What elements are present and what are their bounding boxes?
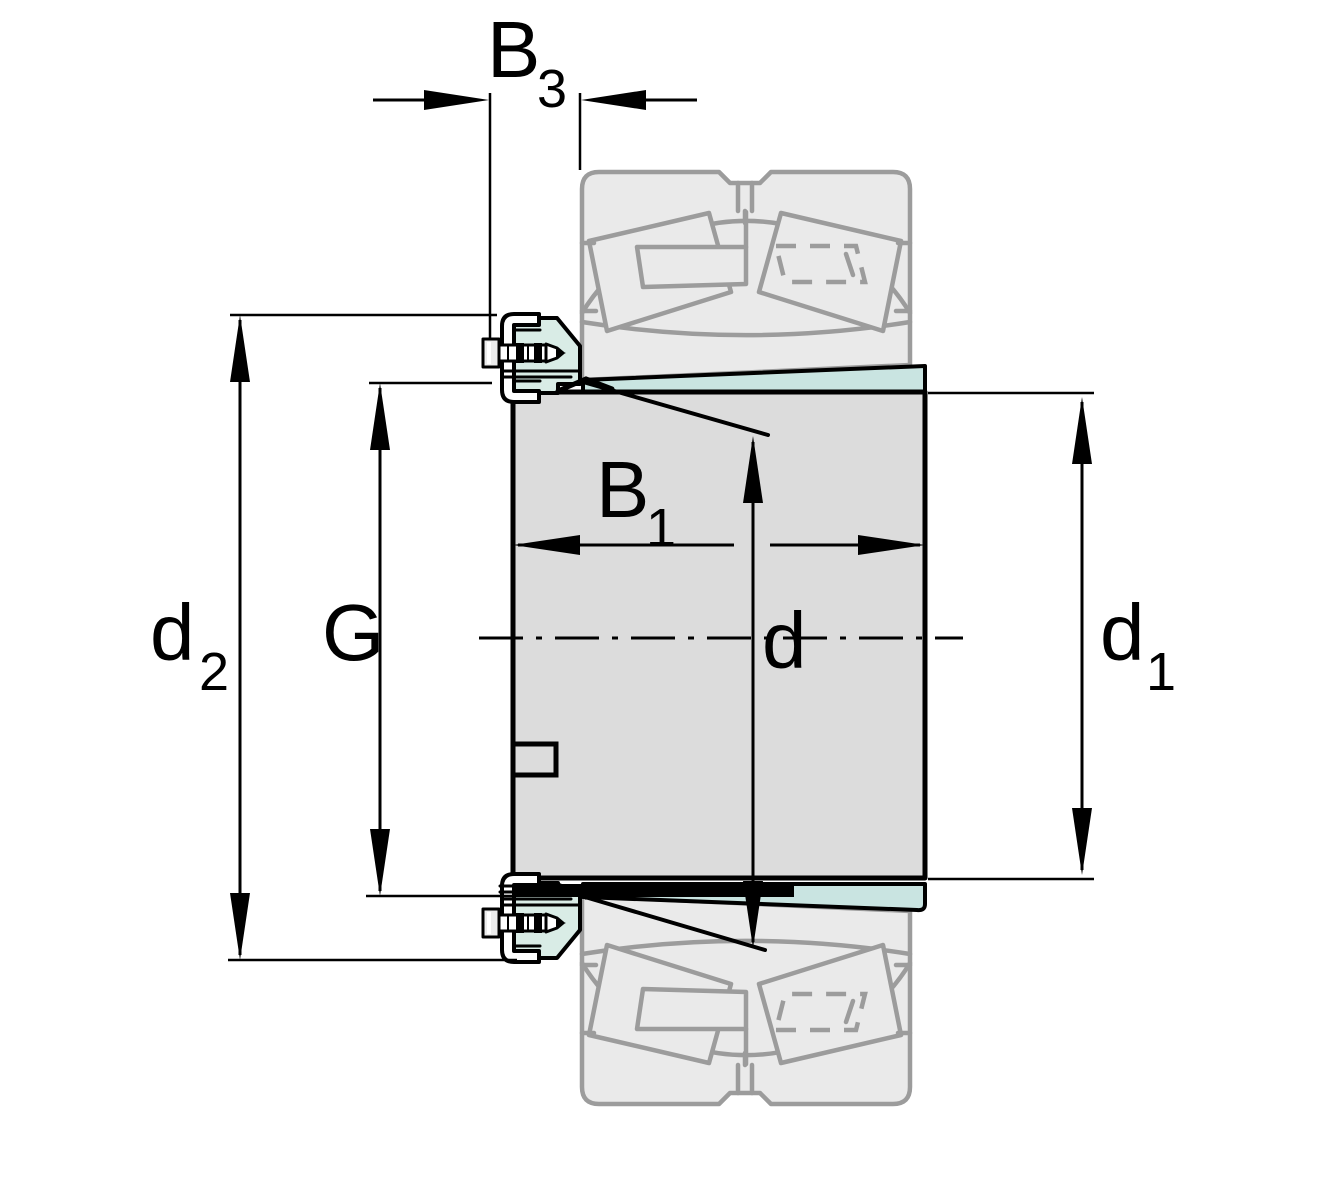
dimension-label-d1: d (1100, 588, 1145, 677)
set-screw-thread-band (516, 343, 524, 363)
bearing-cage-bar (637, 247, 746, 287)
adapter-sleeve-body (513, 392, 925, 878)
d1-arrow-bottom (1072, 808, 1092, 875)
ghost-bearing-half (582, 172, 910, 380)
technical-drawing-canvas: B 3 d 2 G B 1 d d 1 (0, 0, 1330, 1200)
g-arrow-top (370, 383, 390, 450)
d2-arrow-top (230, 315, 250, 382)
set-screw-head-highlight (487, 342, 491, 364)
dimension-label-b1-sub: 1 (646, 498, 676, 558)
b3-arrow-left (424, 90, 489, 110)
dimension-label-b3: B (487, 5, 540, 94)
d2-arrow-bottom (230, 893, 250, 960)
b3-arrow-right (581, 90, 646, 110)
dimension-label-d2-sub: 2 (199, 642, 229, 702)
dimension-label-g: G (322, 588, 384, 677)
dimension-label-d2: d (150, 588, 195, 677)
dimension-label-d: d (762, 596, 807, 685)
ghost-bearing-bottom (582, 896, 910, 1104)
dimension-d1 (928, 393, 1094, 879)
set-screw-thread-band (534, 343, 542, 363)
dimension-label-b1: B (596, 445, 649, 534)
adapter-sleeve-dimension-drawing: B 3 d 2 G B 1 d d 1 (0, 0, 1330, 1200)
g-arrow-bottom (370, 829, 390, 896)
d1-arrow-top (1072, 397, 1092, 464)
dimension-label-b3-sub: 3 (537, 59, 567, 119)
b3-extension-lines (490, 93, 580, 338)
dimension-label-d1-sub: 1 (1146, 642, 1176, 702)
d1-extension-lines (928, 393, 1094, 879)
